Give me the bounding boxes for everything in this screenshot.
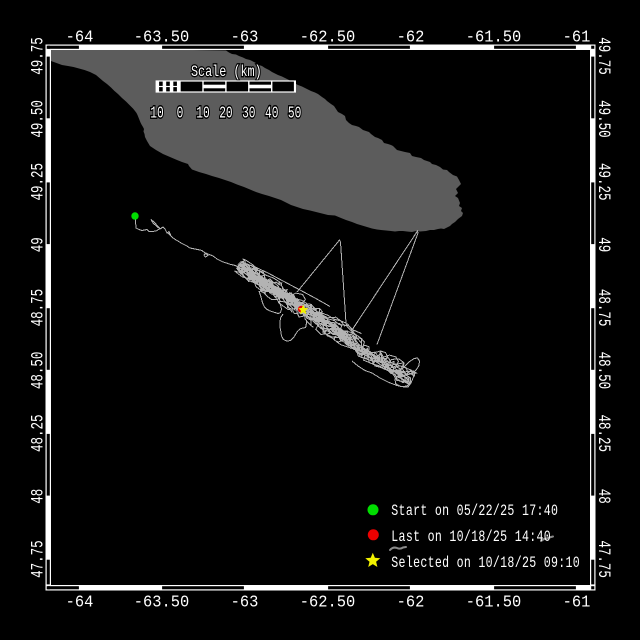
svg-text:-62: -62 [397,593,425,612]
svg-text:-63.50: -63.50 [134,28,189,47]
svg-text:49.25: 49.25 [29,163,48,200]
svg-text:-64: -64 [66,593,94,612]
svg-text:Selected on 10/18/25 09:10: Selected on 10/18/25 09:10 [391,556,580,573]
svg-text:48.75: 48.75 [593,289,612,326]
svg-text:47.75: 47.75 [29,540,48,577]
svg-text:48.50: 48.50 [593,352,612,389]
svg-text:-62.50: -62.50 [300,593,355,612]
svg-text:49: 49 [593,237,612,252]
svg-text:-61: -61 [563,28,591,47]
svg-text:-61: -61 [563,593,591,612]
svg-text:50: 50 [288,105,301,124]
svg-text:48: 48 [593,489,612,504]
svg-text:49.50: 49.50 [593,100,612,137]
svg-text:-63: -63 [231,593,259,612]
svg-text:10: 10 [150,105,163,124]
svg-text:40: 40 [265,105,278,124]
svg-text:Scale (km): Scale (km) [191,64,262,82]
svg-text:-62: -62 [397,28,425,47]
svg-text:48.75: 48.75 [29,289,48,326]
svg-text:-61.50: -61.50 [466,593,521,612]
svg-text:49: 49 [29,237,48,252]
svg-text:49.25: 49.25 [593,163,612,200]
svg-text:-61.50: -61.50 [466,28,521,47]
svg-text:Start on 05/22/25 17:40: Start on 05/22/25 17:40 [391,504,558,521]
svg-text:Last on 10/18/25 14:40: Last on 10/18/25 14:40 [391,530,551,547]
svg-text:47.75: 47.75 [593,540,612,577]
svg-text:-63: -63 [231,28,259,47]
svg-text:30: 30 [242,105,255,124]
svg-text:-64: -64 [66,28,94,47]
svg-text:48: 48 [29,489,48,504]
svg-text:0: 0 [177,105,184,124]
svg-text:20: 20 [219,105,232,124]
svg-text:48.25: 48.25 [593,415,612,452]
svg-text:49.75: 49.75 [29,37,48,74]
svg-text:49.50: 49.50 [29,100,48,137]
svg-text:10: 10 [196,105,209,124]
svg-text:-63.50: -63.50 [134,593,189,612]
svg-text:49.75: 49.75 [593,37,612,74]
svg-text:48.50: 48.50 [29,352,48,389]
svg-text:48.25: 48.25 [29,415,48,452]
svg-text:-62.50: -62.50 [300,28,355,47]
